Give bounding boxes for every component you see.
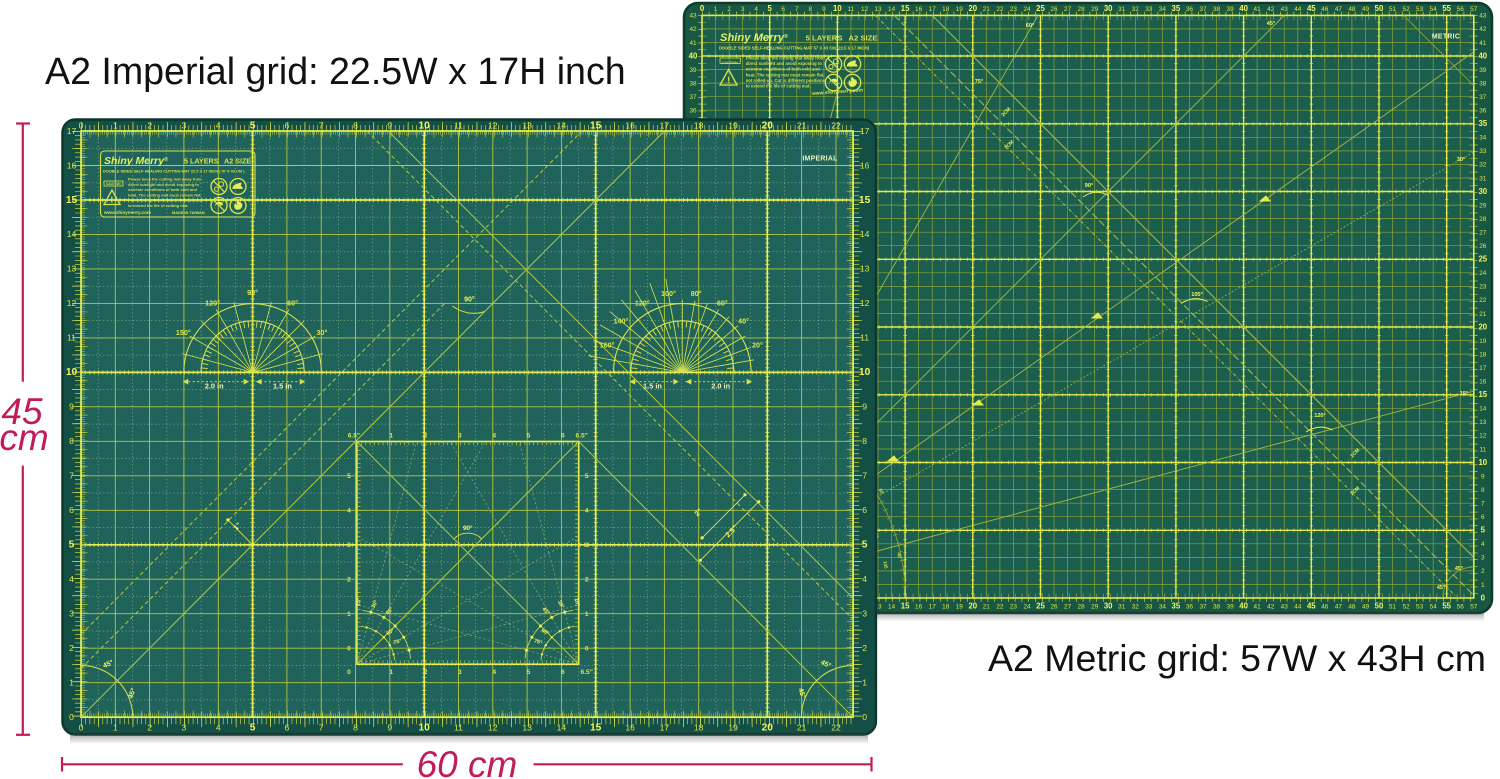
svg-text:extreme conditions of both col: extreme conditions of both cold and bbox=[128, 187, 197, 192]
svg-text:18: 18 bbox=[1479, 351, 1487, 358]
svg-text:7: 7 bbox=[862, 471, 867, 481]
svg-text:21: 21 bbox=[983, 604, 991, 611]
svg-text:12: 12 bbox=[67, 298, 77, 308]
svg-text:0: 0 bbox=[700, 4, 705, 13]
svg-text:55: 55 bbox=[1442, 602, 1451, 611]
svg-text:6.5": 6.5" bbox=[348, 433, 360, 440]
svg-text:3: 3 bbox=[182, 121, 187, 131]
svg-text:Shiny Merry®: Shiny Merry® bbox=[104, 155, 168, 167]
svg-text:17: 17 bbox=[1479, 365, 1487, 372]
svg-text:51: 51 bbox=[1389, 604, 1397, 611]
svg-text:44: 44 bbox=[1294, 604, 1302, 611]
svg-text:50: 50 bbox=[1375, 602, 1384, 611]
svg-text:160°: 160° bbox=[600, 341, 615, 350]
svg-text:30: 30 bbox=[1478, 187, 1487, 196]
svg-text:2.0 in: 2.0 in bbox=[205, 382, 224, 391]
svg-text:16: 16 bbox=[1479, 379, 1487, 386]
svg-text:40: 40 bbox=[689, 51, 698, 60]
svg-text:2: 2 bbox=[424, 433, 428, 440]
svg-text:46: 46 bbox=[1321, 6, 1329, 13]
svg-text:15: 15 bbox=[66, 195, 78, 206]
svg-text:30: 30 bbox=[1104, 4, 1113, 13]
svg-text:51: 51 bbox=[1389, 6, 1397, 13]
svg-text:21: 21 bbox=[797, 723, 807, 733]
svg-text:14: 14 bbox=[1479, 406, 1487, 413]
svg-text:1.5 in: 1.5 in bbox=[273, 382, 292, 391]
svg-text:105°: 105° bbox=[1191, 292, 1203, 298]
svg-text:25: 25 bbox=[1036, 4, 1045, 13]
svg-text:34: 34 bbox=[1159, 604, 1167, 611]
svg-text:49: 49 bbox=[1362, 6, 1370, 13]
svg-text:1: 1 bbox=[585, 611, 589, 618]
svg-text:13: 13 bbox=[874, 6, 882, 13]
svg-text:21: 21 bbox=[983, 6, 991, 13]
svg-text:9: 9 bbox=[69, 402, 74, 412]
svg-text:44: 44 bbox=[1294, 6, 1302, 13]
svg-text:16: 16 bbox=[625, 723, 635, 733]
svg-text:1: 1 bbox=[113, 121, 118, 131]
svg-text:!: ! bbox=[727, 75, 730, 85]
svg-text:A2 Metric grid: 57W x 43H cm: A2 Metric grid: 57W x 43H cm bbox=[988, 637, 1486, 679]
svg-text:7: 7 bbox=[69, 471, 74, 481]
svg-text:47: 47 bbox=[1335, 6, 1343, 13]
svg-text:37: 37 bbox=[1199, 604, 1207, 611]
svg-text:32: 32 bbox=[1132, 604, 1140, 611]
svg-text:42: 42 bbox=[1267, 6, 1275, 13]
svg-text:57: 57 bbox=[1470, 6, 1478, 13]
svg-text:1: 1 bbox=[862, 678, 867, 688]
svg-text:56: 56 bbox=[1457, 6, 1465, 13]
svg-text:37: 37 bbox=[689, 94, 697, 101]
svg-text:15: 15 bbox=[901, 4, 910, 13]
svg-text:28: 28 bbox=[1479, 216, 1487, 223]
svg-text:0: 0 bbox=[862, 712, 867, 722]
svg-text:5: 5 bbox=[69, 540, 75, 551]
svg-text:9: 9 bbox=[387, 121, 392, 131]
svg-text:0: 0 bbox=[585, 645, 589, 652]
svg-text:52: 52 bbox=[1403, 6, 1411, 13]
svg-text:10: 10 bbox=[66, 367, 78, 378]
svg-text:www.shinymerry.com: www.shinymerry.com bbox=[103, 210, 151, 215]
svg-text:43: 43 bbox=[1281, 604, 1289, 611]
svg-text:90°: 90° bbox=[247, 288, 258, 297]
svg-text:2: 2 bbox=[147, 723, 152, 733]
svg-text:to extend the life of cutting: to extend the life of cutting mat. bbox=[128, 203, 188, 208]
svg-text:0: 0 bbox=[347, 645, 351, 652]
svg-text:120°: 120° bbox=[1314, 413, 1326, 419]
svg-text:5: 5 bbox=[585, 473, 589, 480]
svg-text:25: 25 bbox=[1036, 602, 1045, 611]
svg-text:34: 34 bbox=[1479, 135, 1487, 142]
svg-text:1: 1 bbox=[714, 6, 718, 13]
svg-text:53: 53 bbox=[1416, 6, 1424, 13]
svg-text:14: 14 bbox=[557, 723, 567, 733]
svg-text:90°: 90° bbox=[463, 524, 473, 532]
svg-text:4: 4 bbox=[1481, 541, 1485, 548]
svg-text:3: 3 bbox=[862, 609, 867, 619]
svg-text:42: 42 bbox=[689, 26, 697, 33]
svg-text:20: 20 bbox=[762, 121, 774, 132]
svg-text:14: 14 bbox=[888, 6, 896, 13]
svg-text:4: 4 bbox=[862, 574, 867, 584]
svg-text:6: 6 bbox=[285, 723, 290, 733]
svg-text:A2 SIZE: A2 SIZE bbox=[848, 34, 877, 43]
svg-text:42: 42 bbox=[1267, 604, 1275, 611]
svg-text:34: 34 bbox=[1159, 6, 1167, 13]
svg-text:DOUBLE SIDED SELF-HEALING CUTT: DOUBLE SIDED SELF-HEALING CUTTING MAT 57… bbox=[719, 46, 870, 51]
svg-text:cm: cm bbox=[0, 417, 49, 458]
svg-text:15: 15 bbox=[1478, 390, 1487, 399]
svg-text:CAUTION: CAUTION bbox=[106, 182, 121, 186]
svg-text:2: 2 bbox=[862, 643, 867, 653]
svg-text:19: 19 bbox=[728, 723, 738, 733]
svg-text:10: 10 bbox=[419, 121, 431, 132]
svg-text:33: 33 bbox=[1145, 6, 1153, 13]
svg-text:heat. The cutting mat must rem: heat. The cutting mat must remain flat, bbox=[128, 192, 201, 197]
svg-text:19: 19 bbox=[956, 604, 964, 611]
svg-text:31: 31 bbox=[1118, 6, 1126, 13]
svg-text:45°: 45° bbox=[1455, 566, 1463, 572]
svg-text:24: 24 bbox=[1023, 6, 1031, 13]
svg-text:35: 35 bbox=[1478, 119, 1487, 128]
svg-text:11: 11 bbox=[848, 6, 855, 13]
svg-text:45°: 45° bbox=[1437, 585, 1445, 591]
svg-text:38: 38 bbox=[1213, 6, 1221, 13]
svg-text:20: 20 bbox=[1478, 322, 1487, 331]
svg-text:22: 22 bbox=[1479, 297, 1487, 304]
svg-text:11: 11 bbox=[1479, 446, 1486, 453]
svg-text:1.5 in: 1.5 in bbox=[643, 382, 662, 391]
svg-text:26: 26 bbox=[1479, 243, 1487, 250]
svg-text:23: 23 bbox=[1010, 6, 1018, 13]
svg-text:19: 19 bbox=[1479, 338, 1487, 345]
svg-text:7: 7 bbox=[795, 6, 799, 13]
svg-text:27: 27 bbox=[1064, 604, 1072, 611]
svg-text:8: 8 bbox=[69, 436, 74, 446]
svg-text:4: 4 bbox=[492, 669, 496, 676]
svg-text:1: 1 bbox=[389, 669, 393, 676]
svg-text:75°: 75° bbox=[975, 79, 983, 85]
svg-text:47: 47 bbox=[1335, 604, 1343, 611]
svg-text:33: 33 bbox=[1479, 148, 1487, 155]
svg-text:12: 12 bbox=[860, 298, 870, 308]
svg-text:30°: 30° bbox=[316, 328, 327, 337]
svg-text:27: 27 bbox=[1064, 6, 1072, 13]
svg-text:41: 41 bbox=[1254, 604, 1262, 611]
svg-text:5: 5 bbox=[527, 669, 531, 676]
svg-text:22: 22 bbox=[831, 723, 841, 733]
svg-text:60°: 60° bbox=[287, 299, 298, 308]
svg-text:0: 0 bbox=[347, 669, 351, 676]
svg-text:17: 17 bbox=[929, 6, 937, 13]
svg-text:37: 37 bbox=[1479, 94, 1487, 101]
svg-text:21: 21 bbox=[797, 121, 807, 131]
svg-text:4: 4 bbox=[216, 723, 221, 733]
svg-text:53: 53 bbox=[1416, 604, 1424, 611]
svg-text:26: 26 bbox=[1050, 604, 1058, 611]
svg-text:12: 12 bbox=[861, 6, 869, 13]
svg-text:40: 40 bbox=[1478, 51, 1487, 60]
svg-text:16: 16 bbox=[915, 604, 923, 611]
svg-text:18: 18 bbox=[694, 121, 704, 131]
svg-text:25: 25 bbox=[1478, 255, 1487, 264]
svg-text:16: 16 bbox=[860, 160, 870, 170]
svg-text:15: 15 bbox=[859, 195, 871, 206]
svg-text:40: 40 bbox=[1239, 4, 1248, 13]
svg-text:5: 5 bbox=[1481, 526, 1486, 535]
svg-text:8: 8 bbox=[353, 121, 358, 131]
svg-text:39: 39 bbox=[1479, 67, 1487, 74]
svg-text:41: 41 bbox=[1254, 6, 1262, 13]
svg-text:60 cm: 60 cm bbox=[417, 744, 518, 779]
svg-text:3: 3 bbox=[458, 433, 462, 440]
svg-text:45°: 45° bbox=[1267, 21, 1275, 27]
svg-text:3: 3 bbox=[458, 669, 462, 676]
svg-text:4: 4 bbox=[754, 6, 758, 13]
svg-text:7: 7 bbox=[319, 723, 324, 733]
svg-text:1: 1 bbox=[113, 723, 118, 733]
svg-text:15: 15 bbox=[590, 121, 602, 132]
svg-text:4: 4 bbox=[216, 121, 221, 131]
svg-text:36: 36 bbox=[1186, 6, 1194, 13]
svg-text:21: 21 bbox=[1479, 311, 1487, 318]
svg-text:2: 2 bbox=[69, 643, 74, 653]
svg-text:direct sunlight and avoid expo: direct sunlight and avoid exposing to bbox=[128, 182, 199, 187]
svg-text:9: 9 bbox=[1481, 473, 1485, 480]
svg-text:22: 22 bbox=[831, 121, 841, 131]
svg-text:46: 46 bbox=[1321, 604, 1329, 611]
svg-text:3: 3 bbox=[69, 609, 74, 619]
svg-text:41: 41 bbox=[1479, 40, 1487, 47]
svg-text:9: 9 bbox=[822, 6, 826, 13]
svg-text:45: 45 bbox=[1307, 4, 1316, 13]
svg-text:0: 0 bbox=[79, 723, 84, 733]
svg-text:17: 17 bbox=[660, 723, 670, 733]
svg-text:40°: 40° bbox=[738, 317, 749, 326]
svg-text:CAUTION: CAUTION bbox=[722, 61, 738, 65]
svg-text:36: 36 bbox=[1479, 108, 1487, 115]
svg-text:Please keep the cutting mat aw: Please keep the cutting mat away from bbox=[746, 55, 825, 60]
svg-text:15: 15 bbox=[590, 723, 602, 734]
svg-text:!: ! bbox=[111, 196, 114, 205]
svg-text:54: 54 bbox=[1430, 6, 1438, 13]
svg-text:37: 37 bbox=[1199, 6, 1207, 13]
svg-text:28: 28 bbox=[1078, 6, 1086, 13]
svg-text:38: 38 bbox=[689, 80, 697, 87]
svg-text:13: 13 bbox=[522, 121, 532, 131]
svg-text:4: 4 bbox=[492, 433, 496, 440]
svg-text:5: 5 bbox=[250, 723, 256, 734]
svg-text:32: 32 bbox=[1479, 162, 1487, 169]
svg-text:20: 20 bbox=[968, 4, 977, 13]
svg-text:4: 4 bbox=[69, 574, 74, 584]
svg-text:28: 28 bbox=[1078, 604, 1086, 611]
svg-text:43: 43 bbox=[689, 13, 697, 20]
svg-text:2: 2 bbox=[424, 669, 428, 676]
svg-text:Shiny Merry®: Shiny Merry® bbox=[720, 32, 789, 44]
svg-text:18: 18 bbox=[942, 604, 950, 611]
svg-text:IMPERIAL: IMPERIAL bbox=[802, 156, 837, 163]
svg-text:3: 3 bbox=[585, 542, 589, 549]
svg-text:17: 17 bbox=[929, 604, 937, 611]
svg-text:90°: 90° bbox=[1085, 183, 1093, 189]
svg-text:43: 43 bbox=[1281, 6, 1289, 13]
svg-text:A2 Imperial grid: 22.5W x 17H: A2 Imperial grid: 22.5W x 17H inch bbox=[45, 50, 626, 92]
svg-text:to extend the life of cutting: to extend the life of cutting mat. bbox=[746, 84, 811, 89]
svg-text:39: 39 bbox=[689, 67, 697, 74]
svg-text:12: 12 bbox=[488, 121, 498, 131]
svg-text:6: 6 bbox=[69, 505, 74, 515]
svg-text:6: 6 bbox=[285, 121, 290, 131]
svg-text:14: 14 bbox=[557, 121, 567, 131]
svg-text:60°: 60° bbox=[717, 299, 728, 308]
svg-text:24: 24 bbox=[1479, 270, 1487, 277]
svg-text:1: 1 bbox=[389, 433, 393, 440]
svg-text:not rolled-up. Cut in differen: not rolled-up. Cut in different position… bbox=[746, 78, 826, 83]
svg-text:12: 12 bbox=[488, 723, 498, 733]
svg-text:5: 5 bbox=[862, 540, 868, 551]
svg-text:23: 23 bbox=[1479, 284, 1487, 291]
svg-text:140°: 140° bbox=[614, 317, 629, 326]
svg-text:40: 40 bbox=[1239, 602, 1248, 611]
svg-text:42: 42 bbox=[1479, 26, 1487, 33]
svg-text:heat. The cutting mat must rem: heat. The cutting mat must remain flat, bbox=[746, 72, 825, 77]
svg-text:32: 32 bbox=[1132, 6, 1140, 13]
svg-text:10: 10 bbox=[1478, 458, 1487, 467]
svg-text:13: 13 bbox=[522, 723, 532, 733]
svg-text:48: 48 bbox=[1348, 6, 1356, 13]
svg-text:29: 29 bbox=[1479, 202, 1487, 209]
svg-text:10: 10 bbox=[419, 723, 431, 734]
svg-text:5 LAYERS: 5 LAYERS bbox=[184, 157, 219, 166]
svg-text:100°: 100° bbox=[661, 289, 676, 298]
svg-text:120°: 120° bbox=[635, 299, 650, 308]
svg-text:10: 10 bbox=[833, 4, 842, 13]
svg-text:150°: 150° bbox=[176, 328, 191, 337]
svg-text:18: 18 bbox=[694, 723, 704, 733]
svg-text:16: 16 bbox=[625, 121, 635, 131]
svg-text:5 LAYERS: 5 LAYERS bbox=[806, 34, 843, 43]
svg-text:29: 29 bbox=[1091, 6, 1099, 13]
svg-text:8: 8 bbox=[809, 6, 813, 13]
svg-text:16: 16 bbox=[67, 160, 77, 170]
svg-text:11: 11 bbox=[860, 333, 869, 343]
svg-text:57: 57 bbox=[1470, 604, 1478, 611]
svg-text:11: 11 bbox=[454, 121, 463, 131]
svg-text:0: 0 bbox=[69, 712, 74, 722]
svg-text:11: 11 bbox=[454, 723, 463, 733]
svg-text:2: 2 bbox=[727, 6, 731, 13]
svg-text:2: 2 bbox=[147, 121, 152, 131]
svg-text:2: 2 bbox=[585, 576, 589, 583]
svg-text:3: 3 bbox=[1481, 555, 1485, 562]
svg-text:1: 1 bbox=[1481, 582, 1485, 589]
svg-text:6: 6 bbox=[1481, 514, 1485, 521]
svg-text:38: 38 bbox=[1213, 604, 1221, 611]
svg-text:17: 17 bbox=[67, 126, 77, 136]
svg-text:19: 19 bbox=[956, 6, 964, 13]
svg-text:3: 3 bbox=[182, 723, 187, 733]
svg-text:6.5": 6.5" bbox=[576, 433, 588, 440]
svg-text:direct sunlight and avoid expo: direct sunlight and avoid exposing to bbox=[746, 61, 823, 66]
svg-text:18: 18 bbox=[942, 6, 950, 13]
svg-text:39: 39 bbox=[1227, 604, 1235, 611]
svg-text:20: 20 bbox=[968, 602, 977, 611]
svg-text:5: 5 bbox=[768, 4, 773, 13]
svg-text:55: 55 bbox=[1442, 4, 1451, 13]
svg-text:33: 33 bbox=[1145, 604, 1153, 611]
svg-text:8: 8 bbox=[862, 436, 867, 446]
svg-text:16: 16 bbox=[915, 6, 923, 13]
svg-text:48: 48 bbox=[1348, 604, 1356, 611]
svg-text:29: 29 bbox=[1091, 604, 1099, 611]
svg-text:13: 13 bbox=[860, 264, 870, 274]
svg-text:0: 0 bbox=[79, 121, 84, 131]
svg-text:36: 36 bbox=[689, 108, 697, 115]
svg-text:35: 35 bbox=[1172, 4, 1181, 13]
svg-text:17: 17 bbox=[660, 121, 670, 131]
svg-text:54: 54 bbox=[1430, 604, 1438, 611]
svg-text:30°: 30° bbox=[1457, 157, 1465, 163]
svg-text:5: 5 bbox=[527, 433, 531, 440]
svg-text:6: 6 bbox=[781, 6, 785, 13]
svg-text:12: 12 bbox=[1479, 433, 1487, 440]
svg-text:9: 9 bbox=[387, 723, 392, 733]
svg-text:4: 4 bbox=[585, 508, 589, 515]
svg-text:45: 45 bbox=[1307, 602, 1316, 611]
svg-text:120°: 120° bbox=[205, 299, 220, 308]
svg-text:2: 2 bbox=[1481, 568, 1485, 575]
svg-text:20: 20 bbox=[762, 723, 774, 734]
svg-text:23: 23 bbox=[1010, 604, 1018, 611]
svg-text:31: 31 bbox=[1118, 604, 1126, 611]
svg-text:38: 38 bbox=[1479, 80, 1487, 87]
svg-text:15°: 15° bbox=[1460, 391, 1468, 397]
svg-text:20°: 20° bbox=[752, 341, 763, 350]
svg-text:6: 6 bbox=[561, 669, 565, 676]
svg-text:5: 5 bbox=[347, 473, 351, 480]
svg-text:27: 27 bbox=[1479, 230, 1487, 237]
svg-text:90°: 90° bbox=[464, 296, 475, 304]
svg-text:14: 14 bbox=[860, 229, 870, 239]
svg-text:7: 7 bbox=[319, 121, 324, 131]
svg-text:24: 24 bbox=[1023, 604, 1031, 611]
svg-text:14: 14 bbox=[888, 604, 896, 611]
svg-text:7: 7 bbox=[1481, 501, 1485, 508]
svg-text:13: 13 bbox=[1479, 419, 1487, 426]
svg-text:80°: 80° bbox=[691, 289, 702, 298]
svg-text:4: 4 bbox=[347, 508, 351, 515]
svg-text:31: 31 bbox=[1479, 175, 1487, 182]
svg-text:56: 56 bbox=[1457, 604, 1465, 611]
svg-text:35: 35 bbox=[1172, 602, 1181, 611]
svg-text:MADE IN TAIWAN: MADE IN TAIWAN bbox=[172, 210, 205, 215]
svg-text:6: 6 bbox=[561, 433, 565, 440]
svg-text:3: 3 bbox=[347, 542, 351, 549]
svg-text:0: 0 bbox=[1481, 593, 1486, 602]
svg-text:60°: 60° bbox=[1026, 23, 1034, 29]
svg-text:17: 17 bbox=[860, 126, 870, 136]
svg-text:9: 9 bbox=[862, 402, 867, 412]
svg-text:30: 30 bbox=[1104, 602, 1113, 611]
svg-text:3: 3 bbox=[741, 6, 745, 13]
svg-text:19: 19 bbox=[728, 121, 738, 131]
svg-text:39: 39 bbox=[1227, 6, 1235, 13]
svg-text:22: 22 bbox=[996, 604, 1004, 611]
svg-text:DOUBLE SIDED SELF-HEALING CUTT: DOUBLE SIDED SELF-HEALING CUTTING MAT 22… bbox=[103, 169, 245, 174]
svg-text:15: 15 bbox=[901, 602, 910, 611]
svg-text:1: 1 bbox=[347, 611, 351, 618]
